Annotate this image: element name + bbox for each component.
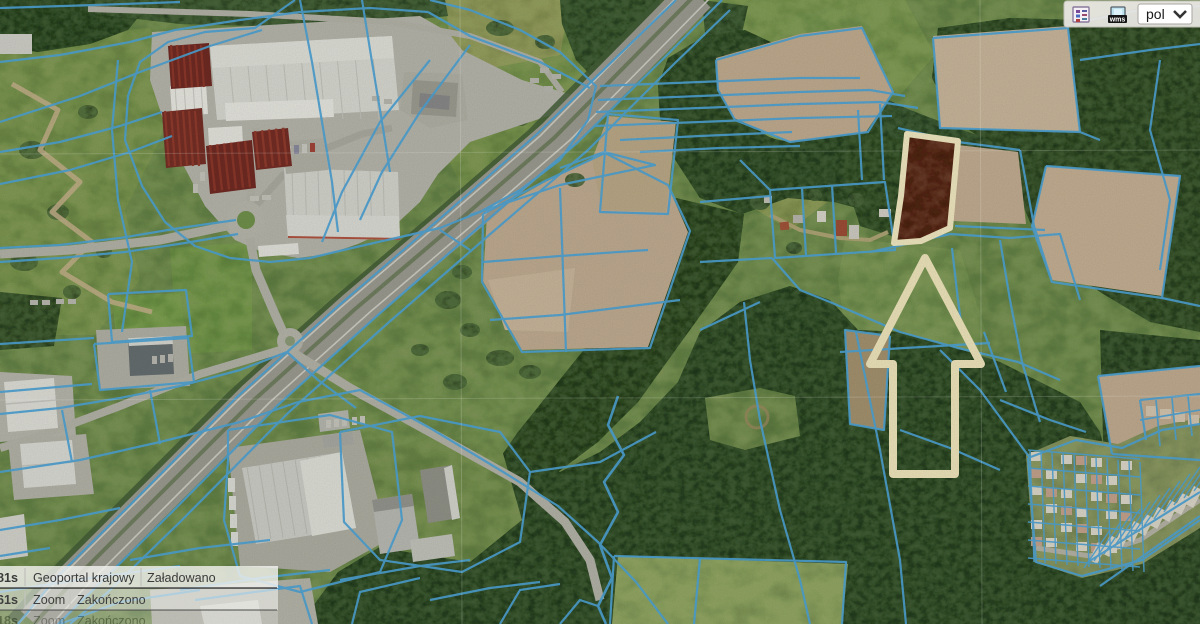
svg-text:Geoportal krajowy: Geoportal krajowy: [33, 571, 135, 585]
svg-text:wms: wms: [1109, 17, 1126, 24]
svg-text:61s: 61s: [0, 593, 18, 607]
svg-text:Zakończono: Zakończono: [77, 593, 146, 607]
svg-text:Załadowano: Załadowano: [147, 571, 216, 585]
svg-text:Zoom: Zoom: [33, 614, 65, 624]
svg-text:pol: pol: [1146, 6, 1165, 22]
svg-text:Zakończono: Zakończono: [77, 614, 146, 624]
svg-text:18s: 18s: [0, 614, 18, 624]
svg-text:Zoom: Zoom: [33, 593, 65, 607]
svg-text:81s: 81s: [0, 571, 18, 585]
